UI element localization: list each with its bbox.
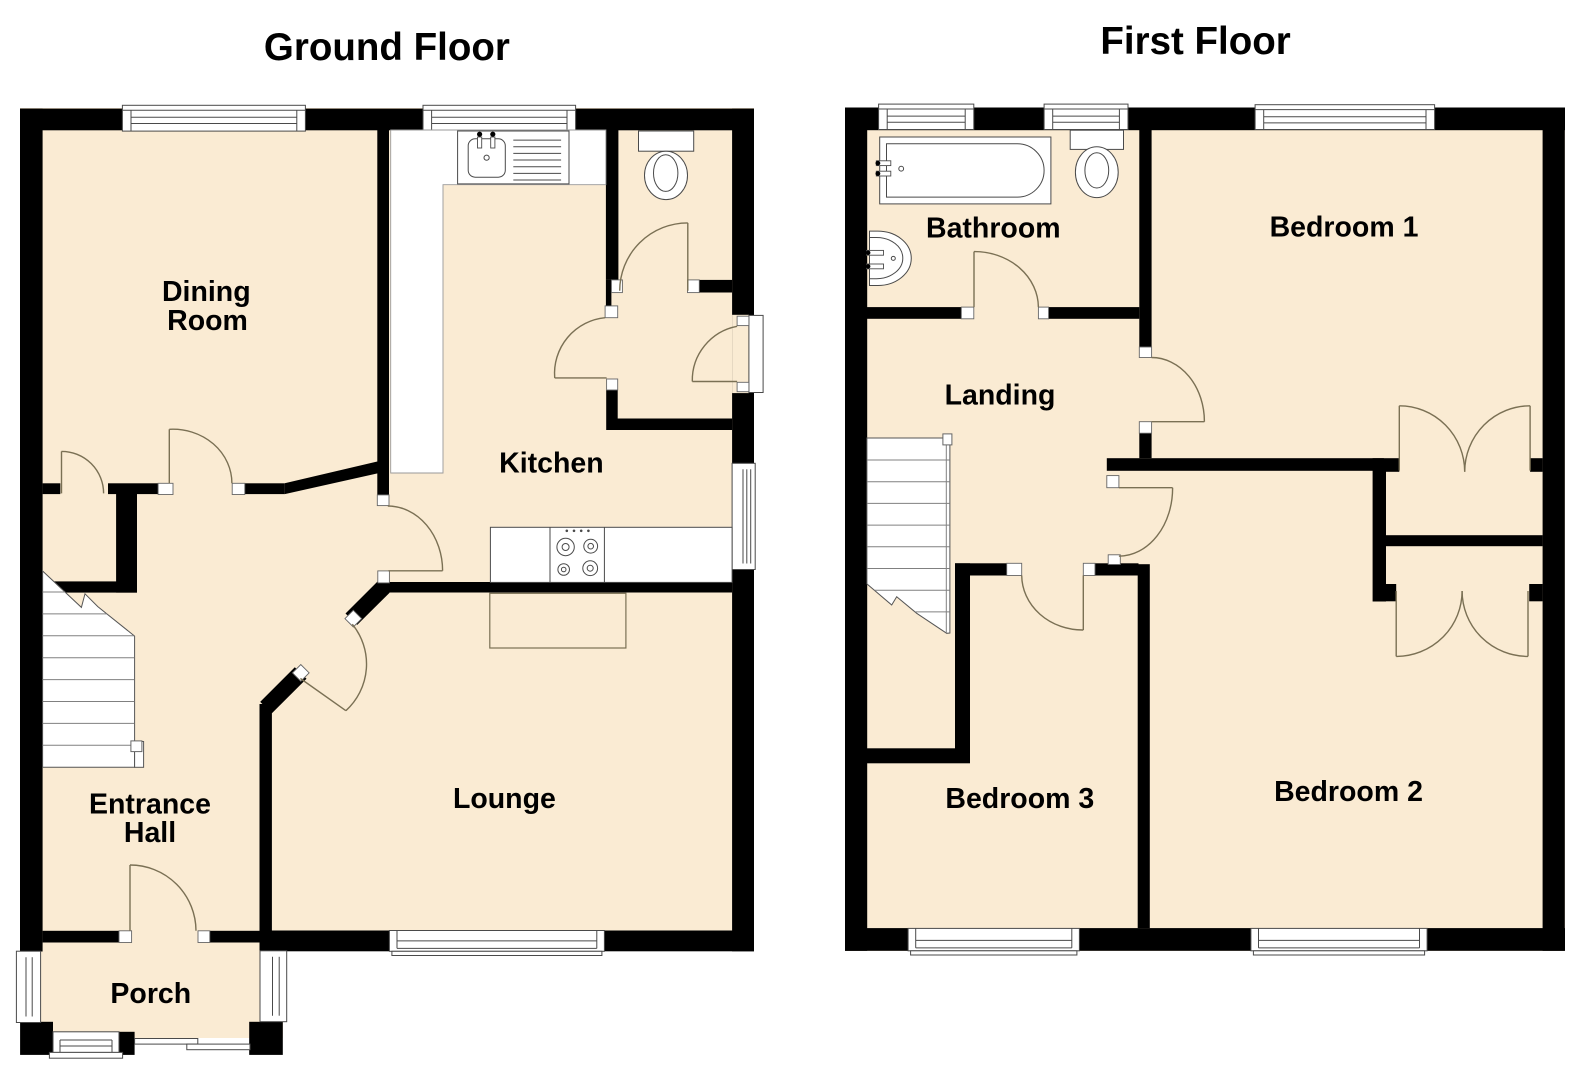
- svg-text:Lounge: Lounge: [453, 783, 556, 815]
- svg-text:Room: Room: [167, 305, 248, 337]
- svg-text:Bedroom 3: Bedroom 3: [945, 783, 1094, 815]
- svg-text:Bedroom 1: Bedroom 1: [1270, 212, 1419, 244]
- svg-text:Entrance: Entrance: [89, 788, 211, 820]
- svg-text:Bathroom: Bathroom: [926, 212, 1061, 244]
- svg-text:Dining: Dining: [162, 276, 251, 308]
- svg-text:Bedroom 2: Bedroom 2: [1274, 776, 1423, 808]
- svg-text:Ground Floor: Ground Floor: [264, 26, 510, 69]
- svg-text:Hall: Hall: [124, 817, 176, 849]
- svg-text:Landing: Landing: [945, 380, 1056, 412]
- svg-text:Porch: Porch: [110, 978, 191, 1010]
- svg-text:Kitchen: Kitchen: [499, 448, 604, 480]
- svg-text:First Floor: First Floor: [1100, 20, 1290, 63]
